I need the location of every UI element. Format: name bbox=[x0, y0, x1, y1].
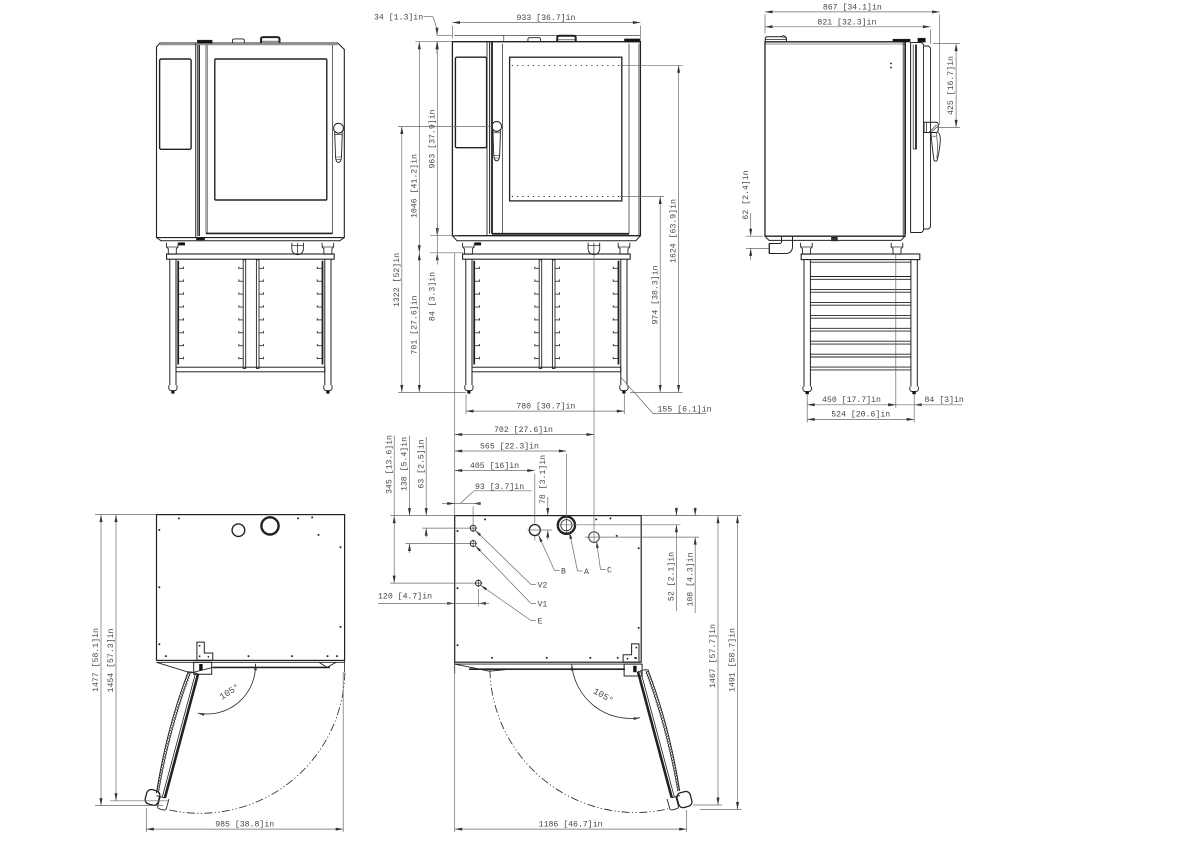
svg-text:405 [16]in: 405 [16]in bbox=[470, 461, 519, 471]
svg-text:985 [38.8]in: 985 [38.8]in bbox=[215, 819, 274, 829]
svg-text:155 [6.1]in: 155 [6.1]in bbox=[658, 404, 712, 414]
svg-text:1186 [46.7]in: 1186 [46.7]in bbox=[539, 819, 603, 829]
svg-text:701 [27.6]in: 701 [27.6]in bbox=[409, 295, 419, 354]
svg-text:62 [2.4]in: 62 [2.4]in bbox=[741, 170, 751, 219]
svg-text:34 [1.3]in: 34 [1.3]in bbox=[374, 13, 423, 23]
svg-text:1491 [58.7]in: 1491 [58.7]in bbox=[728, 628, 738, 692]
svg-text:425 [16.7]in: 425 [16.7]in bbox=[946, 56, 956, 115]
svg-text:1624 [63.9]in: 1624 [63.9]in bbox=[669, 199, 679, 263]
svg-text:108 [4.3]in: 108 [4.3]in bbox=[685, 552, 695, 606]
svg-text:78 [3.1]in: 78 [3.1]in bbox=[538, 455, 548, 504]
svg-text:780 [30.7]in: 780 [30.7]in bbox=[516, 401, 575, 411]
svg-text:1322 [52]in: 1322 [52]in bbox=[392, 253, 402, 307]
svg-text:1454 [57.3]in: 1454 [57.3]in bbox=[106, 628, 116, 692]
svg-text:1477 [58.1]in: 1477 [58.1]in bbox=[91, 628, 101, 692]
svg-text:B: B bbox=[561, 568, 566, 577]
svg-text:E: E bbox=[538, 618, 543, 627]
svg-text:821 [32.3]in: 821 [32.3]in bbox=[817, 18, 876, 28]
svg-text:93 [3.7]in: 93 [3.7]in bbox=[475, 482, 524, 492]
svg-text:V2: V2 bbox=[538, 582, 548, 591]
svg-text:963 [37.9]in: 963 [37.9]in bbox=[427, 109, 437, 168]
svg-text:A: A bbox=[584, 568, 589, 577]
svg-text:52 [2.1]in: 52 [2.1]in bbox=[667, 552, 677, 601]
svg-text:933 [36.7]in: 933 [36.7]in bbox=[517, 13, 576, 23]
svg-text:702 [27.6]in: 702 [27.6]in bbox=[494, 425, 553, 435]
svg-text:565 [22.3]in: 565 [22.3]in bbox=[480, 442, 539, 452]
svg-text:C: C bbox=[607, 567, 612, 576]
svg-text:1467 [57.7]in: 1467 [57.7]in bbox=[708, 624, 718, 688]
svg-text:138 [5.4]in: 138 [5.4]in bbox=[400, 437, 410, 491]
svg-text:345 [13.6]in: 345 [13.6]in bbox=[384, 435, 394, 494]
svg-text:120 [4.7]in: 120 [4.7]in bbox=[378, 592, 432, 602]
svg-text:84 [3.3]in: 84 [3.3]in bbox=[427, 272, 437, 321]
svg-text:63 [2.5]in: 63 [2.5]in bbox=[416, 439, 426, 488]
svg-text:524 [20.6]in: 524 [20.6]in bbox=[831, 410, 890, 420]
svg-text:867 [34.1]in: 867 [34.1]in bbox=[823, 3, 882, 13]
svg-text:V1: V1 bbox=[538, 601, 548, 610]
svg-text:450 [17.7]in: 450 [17.7]in bbox=[822, 395, 881, 405]
svg-text:84 [3]in: 84 [3]in bbox=[925, 395, 964, 405]
svg-text:974 [38.3]in: 974 [38.3]in bbox=[650, 265, 660, 324]
svg-text:1046 [41.2]in: 1046 [41.2]in bbox=[409, 154, 419, 218]
